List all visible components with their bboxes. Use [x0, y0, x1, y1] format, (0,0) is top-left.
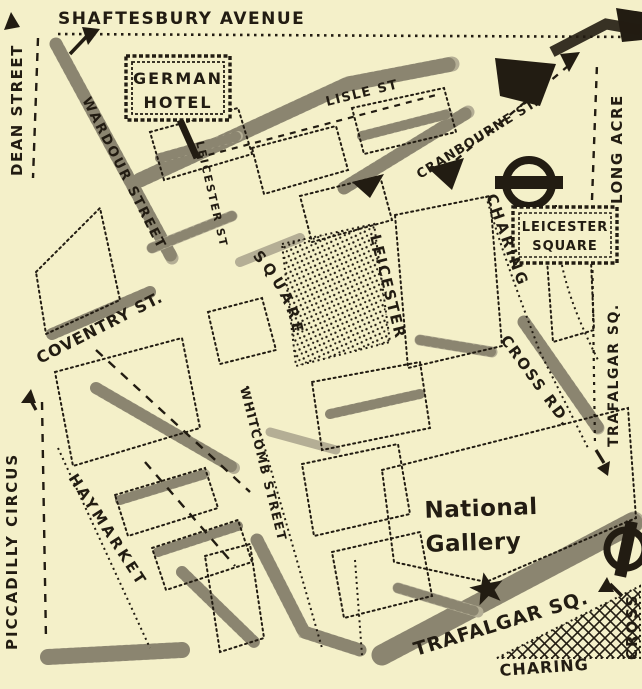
street-label-whitcomb-street: WHITCOMB STREET [237, 385, 290, 543]
building-block [208, 298, 276, 364]
street-label-dean-street: DEAN STREET [8, 44, 26, 176]
national-gallery-label: National Gallery [424, 494, 539, 558]
building-block [302, 444, 410, 536]
road-dashed-center [96, 350, 250, 492]
hotel-sign-line2: HOTEL [143, 93, 212, 112]
arrow-icon [4, 12, 20, 30]
arrow-icon [21, 389, 36, 403]
arrow-tail [596, 450, 604, 463]
road-dean-street [33, 38, 38, 178]
hotel-sign-line1: GERMAN [133, 69, 223, 88]
street-label-long-acre: LONG ACRE [608, 94, 626, 204]
street-band-texture [257, 540, 360, 650]
street-band-texture [96, 388, 234, 468]
road-ng-west-edge [355, 560, 362, 655]
street-band-texture [48, 650, 182, 657]
national-gallery-line2: Gallery [425, 529, 521, 558]
station-sign-line1: LEICESTER [522, 220, 609, 235]
shading-streak [270, 432, 336, 450]
leicester-square-station-sign: LEICESTER SQUARE [513, 207, 617, 263]
station-sign-line2: SQUARE [532, 239, 598, 254]
street-label-cross-bottom: CROSS [623, 594, 641, 660]
arrow-tail [70, 35, 88, 54]
street-label-charing-bottom: CHARING [499, 655, 589, 680]
street-map: GERMAN HOTEL LEICESTER SQUARE SHAFTESBUR… [0, 0, 642, 689]
dark-building-block [495, 58, 556, 106]
underground-roundel-bar [495, 176, 563, 189]
street-label-shaftesbury-avenue: SHAFTESBURY AVENUE [58, 9, 305, 29]
road-long-acre [592, 64, 597, 200]
street-label-piccadilly-circus: PICCADILLY CIRCUS [3, 453, 21, 650]
leicester-square-station [495, 160, 563, 206]
national-gallery-line1: National [424, 494, 538, 524]
building-block [252, 126, 348, 194]
street-band-texture [182, 572, 254, 642]
street-label-trafalgar-sq-side: TRAFALGAR SQ. [606, 303, 622, 447]
road-piccadilly-approach [42, 402, 46, 640]
building-block [332, 532, 432, 618]
road-shaftesbury-dotted [58, 34, 640, 37]
station-sign-border [513, 207, 617, 263]
map-canvas: GERMAN HOTEL LEICESTER SQUARE SHAFTESBUR… [0, 0, 642, 689]
